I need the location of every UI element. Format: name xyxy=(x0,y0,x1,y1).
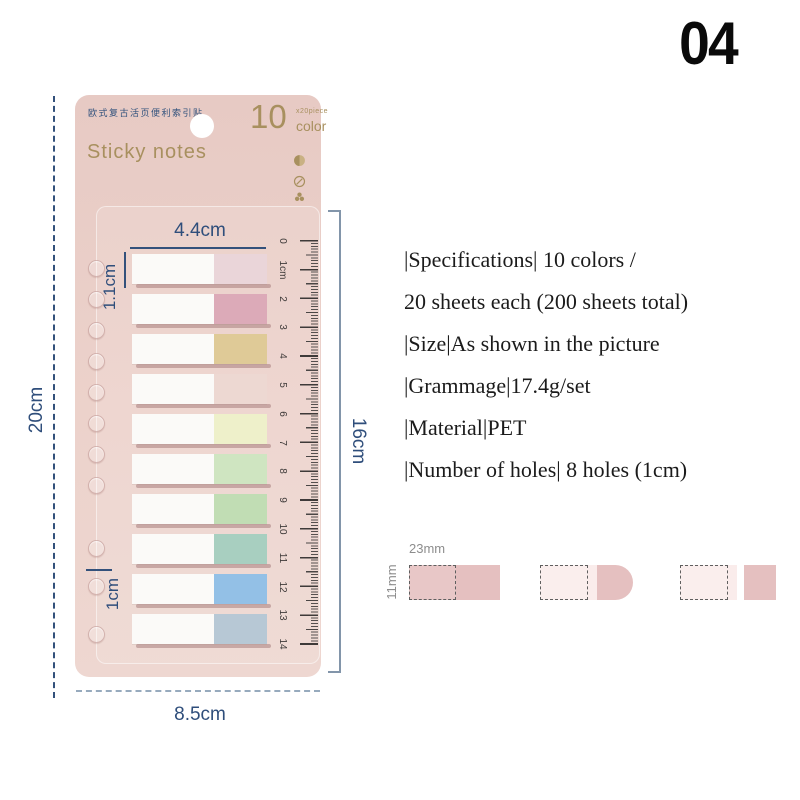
strip-paper xyxy=(132,614,214,644)
punch-hole xyxy=(88,415,105,432)
tab-width-line xyxy=(130,247,266,249)
strip-shadow xyxy=(136,604,271,608)
strip-paper xyxy=(132,534,214,564)
punch-hole xyxy=(88,477,105,494)
strip-shadow xyxy=(136,404,271,408)
strip-1 xyxy=(132,254,267,284)
product-spec-page: 04 欧式复古活页便利索引贴 10 x20piece color Sticky … xyxy=(0,0,800,800)
color-count: 10 xyxy=(250,100,287,133)
tab-height-line xyxy=(124,252,126,288)
product-title: Sticky notes xyxy=(87,141,207,164)
product-card: 欧式复古活页便利索引贴 10 x20piece color Sticky not… xyxy=(75,95,321,677)
ruler-number: 2 xyxy=(275,291,291,307)
strip-4 xyxy=(132,374,267,404)
ruler-number: 13 xyxy=(275,607,291,623)
tab-height-label: 1.1cm xyxy=(100,247,120,327)
card-width-label: 8.5cm xyxy=(140,705,260,725)
ruler-number: 11 xyxy=(275,550,291,566)
strip-6 xyxy=(132,454,267,484)
strip-color-tab xyxy=(214,614,267,644)
card-height-label: 20cm xyxy=(27,370,47,450)
color-unit-label: color xyxy=(296,118,326,134)
strip-shadow xyxy=(136,284,271,288)
strip-shadow xyxy=(136,444,271,448)
spec-line: |Material|PET xyxy=(404,407,794,449)
tab-shape-square-paper-area xyxy=(409,565,456,600)
strip-paper xyxy=(132,414,214,444)
ruler-number: 1cm xyxy=(275,262,291,278)
strip-paper xyxy=(132,334,214,364)
tab-shape-round-end xyxy=(597,565,633,600)
ruler-number: 4 xyxy=(275,348,291,364)
strip-color-tab xyxy=(214,374,267,404)
half-moon-icon xyxy=(293,154,306,167)
chinese-product-name: 欧式复古活页便利索引贴 xyxy=(88,106,204,119)
page-number: 04 xyxy=(668,14,749,74)
strip-3 xyxy=(132,334,267,364)
trefoil-icon xyxy=(293,191,306,204)
bracket-top-cap xyxy=(328,210,341,212)
ruler-span-bracket xyxy=(339,210,341,673)
strip-2 xyxy=(132,294,267,324)
sticky-note-strips xyxy=(132,254,267,654)
pencil-circle-icon xyxy=(293,175,306,188)
tab-shape-round-paper-area xyxy=(540,565,588,600)
tab-width-mm-label: 23mm xyxy=(409,541,445,556)
spec-line: |Specifications| 10 colors / xyxy=(404,239,794,281)
strip-5 xyxy=(132,414,267,444)
ruler-number: 8 xyxy=(275,463,291,479)
ruler-cm-ticks xyxy=(300,240,318,646)
punch-hole xyxy=(88,353,105,370)
tab-width-label: 4.4cm xyxy=(140,221,260,241)
strip-8 xyxy=(132,534,267,564)
strip-color-tab xyxy=(214,494,267,524)
ruler-number: 12 xyxy=(275,579,291,595)
spec-line: 20 sheets each (200 sheets total) xyxy=(404,281,794,323)
tab-shape-flat-paper-area xyxy=(680,565,728,600)
strip-color-tab xyxy=(214,294,267,324)
card-width-dashed-line xyxy=(76,690,320,692)
ruler-number: 14 xyxy=(275,636,291,652)
ruler-number: 3 xyxy=(275,319,291,335)
spec-line: |Number of holes| 8 holes (1cm) xyxy=(404,449,794,491)
strip-shadow xyxy=(136,524,271,528)
strip-shadow xyxy=(136,364,271,368)
strip-color-tab xyxy=(214,574,267,604)
punch-hole xyxy=(88,446,105,463)
tab-shape-flat-end xyxy=(744,565,776,600)
spec-line: |Size|As shown in the picture xyxy=(404,323,794,365)
strip-shadow xyxy=(136,484,271,488)
ruler-number: 0 xyxy=(275,233,291,249)
strip-paper xyxy=(132,494,214,524)
strip-color-tab xyxy=(214,534,267,564)
strip-paper xyxy=(132,574,214,604)
bracket-bottom-cap xyxy=(328,671,341,673)
tab-height-mm-label: 11mm xyxy=(382,552,402,612)
hang-hole xyxy=(190,114,214,138)
strip-9 xyxy=(132,574,267,604)
card-height-dashed-line xyxy=(53,96,55,698)
strip-paper xyxy=(132,254,214,284)
piece-count-label: x20piece xyxy=(296,108,328,115)
strip-color-tab xyxy=(214,454,267,484)
punch-hole xyxy=(88,384,105,401)
strip-paper xyxy=(132,374,214,404)
hole-spacing-label: 1cm xyxy=(103,554,123,634)
ruler-number: 7 xyxy=(275,435,291,451)
strip-7 xyxy=(132,494,267,524)
strip-paper xyxy=(132,454,214,484)
strip-color-tab xyxy=(214,254,267,284)
strip-shadow xyxy=(136,324,271,328)
ruler-number: 10 xyxy=(275,521,291,537)
ruler-number: 5 xyxy=(275,377,291,393)
specifications-text: |Specifications| 10 colors /20 sheets ea… xyxy=(404,239,794,491)
strip-shadow xyxy=(136,644,271,648)
strip-paper xyxy=(132,294,214,324)
strip-10 xyxy=(132,614,267,644)
strip-shadow xyxy=(136,564,271,568)
spec-line: |Grammage|17.4g/set xyxy=(404,365,794,407)
ruler-number: 6 xyxy=(275,406,291,422)
ruler-number: 9 xyxy=(275,492,291,508)
strip-color-tab xyxy=(214,414,267,444)
ruler-span-label: 16cm xyxy=(348,401,368,481)
strip-color-tab xyxy=(214,334,267,364)
